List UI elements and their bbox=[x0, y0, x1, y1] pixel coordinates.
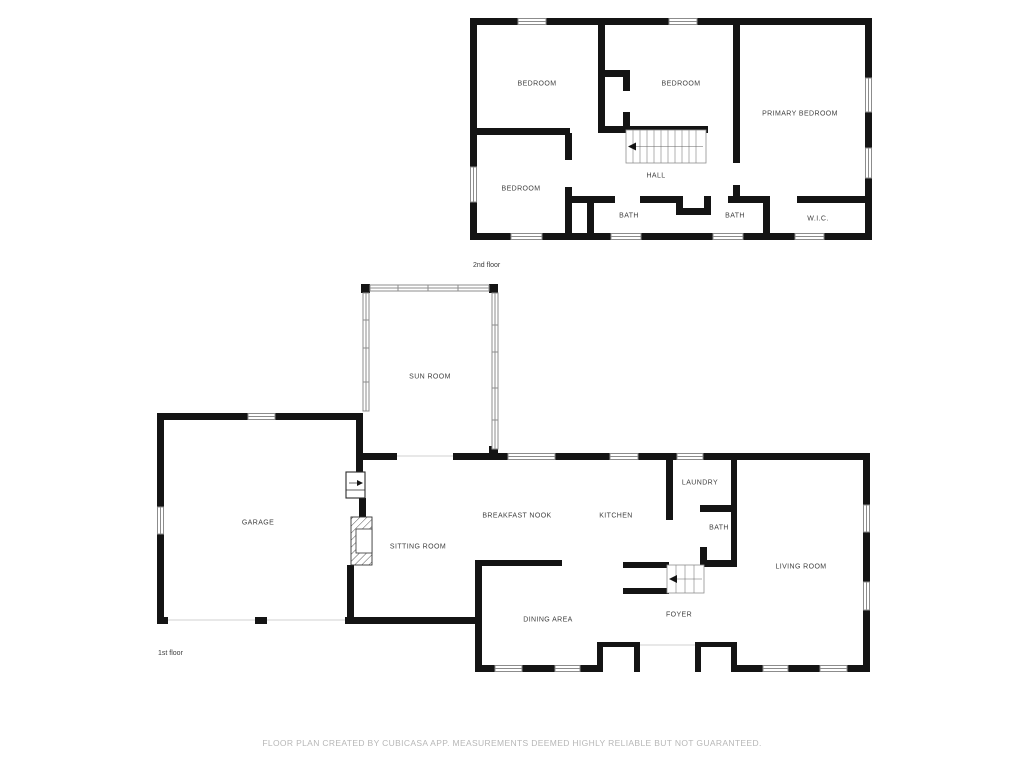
floorplan-page: BEDROOM BEDROOM PRIMARY BEDROOM BEDROOM … bbox=[0, 0, 1024, 768]
room-label-bath-2f-left: BATH bbox=[619, 213, 639, 220]
room-label-laundry: LAUNDRY bbox=[682, 480, 718, 487]
floor2-walls bbox=[470, 18, 872, 240]
floorplan-drawing bbox=[0, 0, 1024, 768]
sunroom-window-walls bbox=[361, 284, 498, 455]
garage-steps-icon bbox=[346, 472, 365, 498]
room-label-garage: GARAGE bbox=[242, 520, 274, 527]
floor1-plan bbox=[157, 284, 870, 672]
floor-caption-2nd: 2nd floor bbox=[473, 262, 500, 269]
room-label-sun-room: SUN ROOM bbox=[409, 374, 451, 381]
room-label-living-room: LIVING ROOM bbox=[775, 564, 826, 571]
floor1-walls bbox=[157, 413, 870, 672]
room-label-bath-1f: BATH bbox=[709, 525, 729, 532]
floor-caption-1st: 1st floor bbox=[158, 650, 183, 657]
room-label-foyer: FOYER bbox=[666, 612, 692, 619]
room-label-wic: W.I.C. bbox=[807, 216, 828, 223]
floor1-staircase-icon bbox=[667, 565, 704, 593]
room-label-bedroom-3: BEDROOM bbox=[502, 186, 541, 193]
room-label-bath-2f-right: BATH bbox=[725, 213, 745, 220]
fireplace-icon bbox=[351, 517, 372, 565]
floor2-plan bbox=[470, 18, 872, 240]
room-label-kitchen: KITCHEN bbox=[599, 513, 633, 520]
room-label-bedroom-2: BEDROOM bbox=[662, 81, 701, 88]
room-label-breakfast-nook: BREAKFAST NOOK bbox=[482, 513, 551, 520]
floor2-staircase-icon bbox=[626, 130, 706, 163]
room-label-hall: HALL bbox=[646, 173, 665, 180]
room-label-sitting-room: SITTING ROOM bbox=[390, 544, 446, 551]
room-label-dining-area: DINING AREA bbox=[523, 617, 573, 624]
floor1-windows bbox=[158, 414, 870, 672]
opening-lines bbox=[168, 456, 695, 645]
room-label-bedroom-1: BEDROOM bbox=[518, 81, 557, 88]
footer-disclaimer: FLOOR PLAN CREATED BY CUBICASA APP. MEAS… bbox=[262, 738, 761, 748]
room-label-primary-bedroom: PRIMARY BEDROOM bbox=[762, 111, 838, 118]
